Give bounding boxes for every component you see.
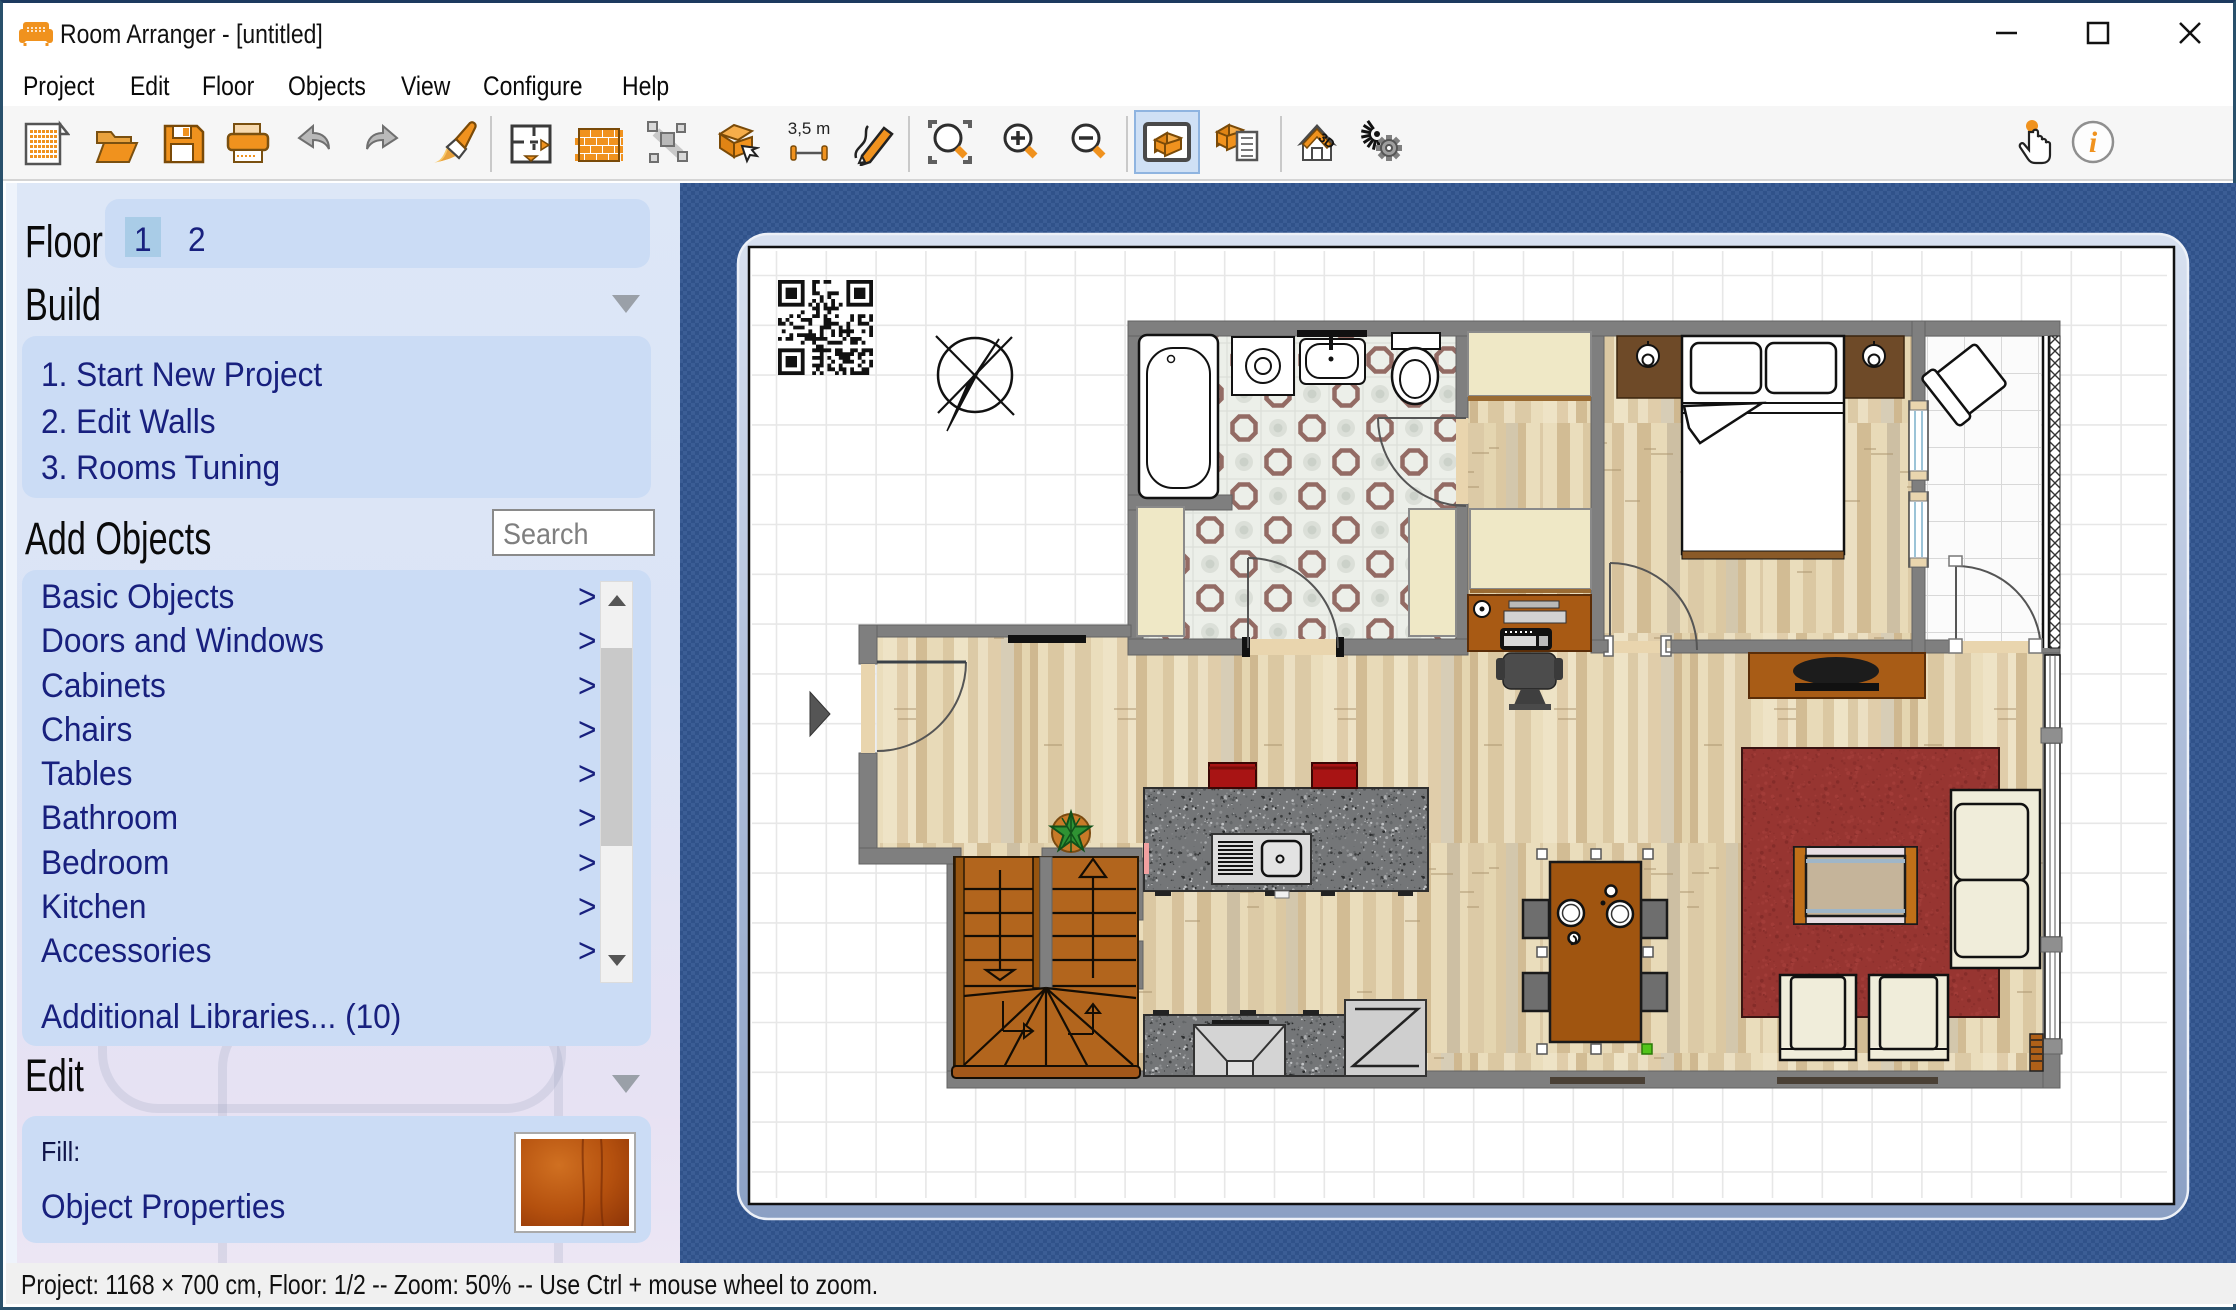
svg-text:i: i [2089,126,2098,159]
svg-text:3,5 m: 3,5 m [788,119,831,138]
